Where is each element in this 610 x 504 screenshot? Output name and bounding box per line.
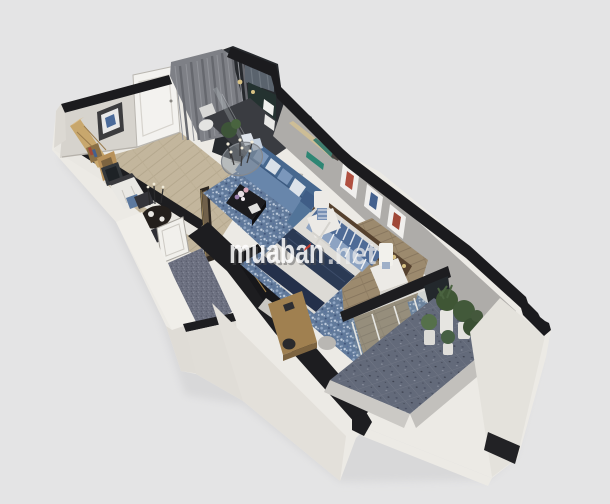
svg-text:.net: .net xyxy=(327,236,376,271)
svg-text:muaban: muaban xyxy=(229,233,324,271)
